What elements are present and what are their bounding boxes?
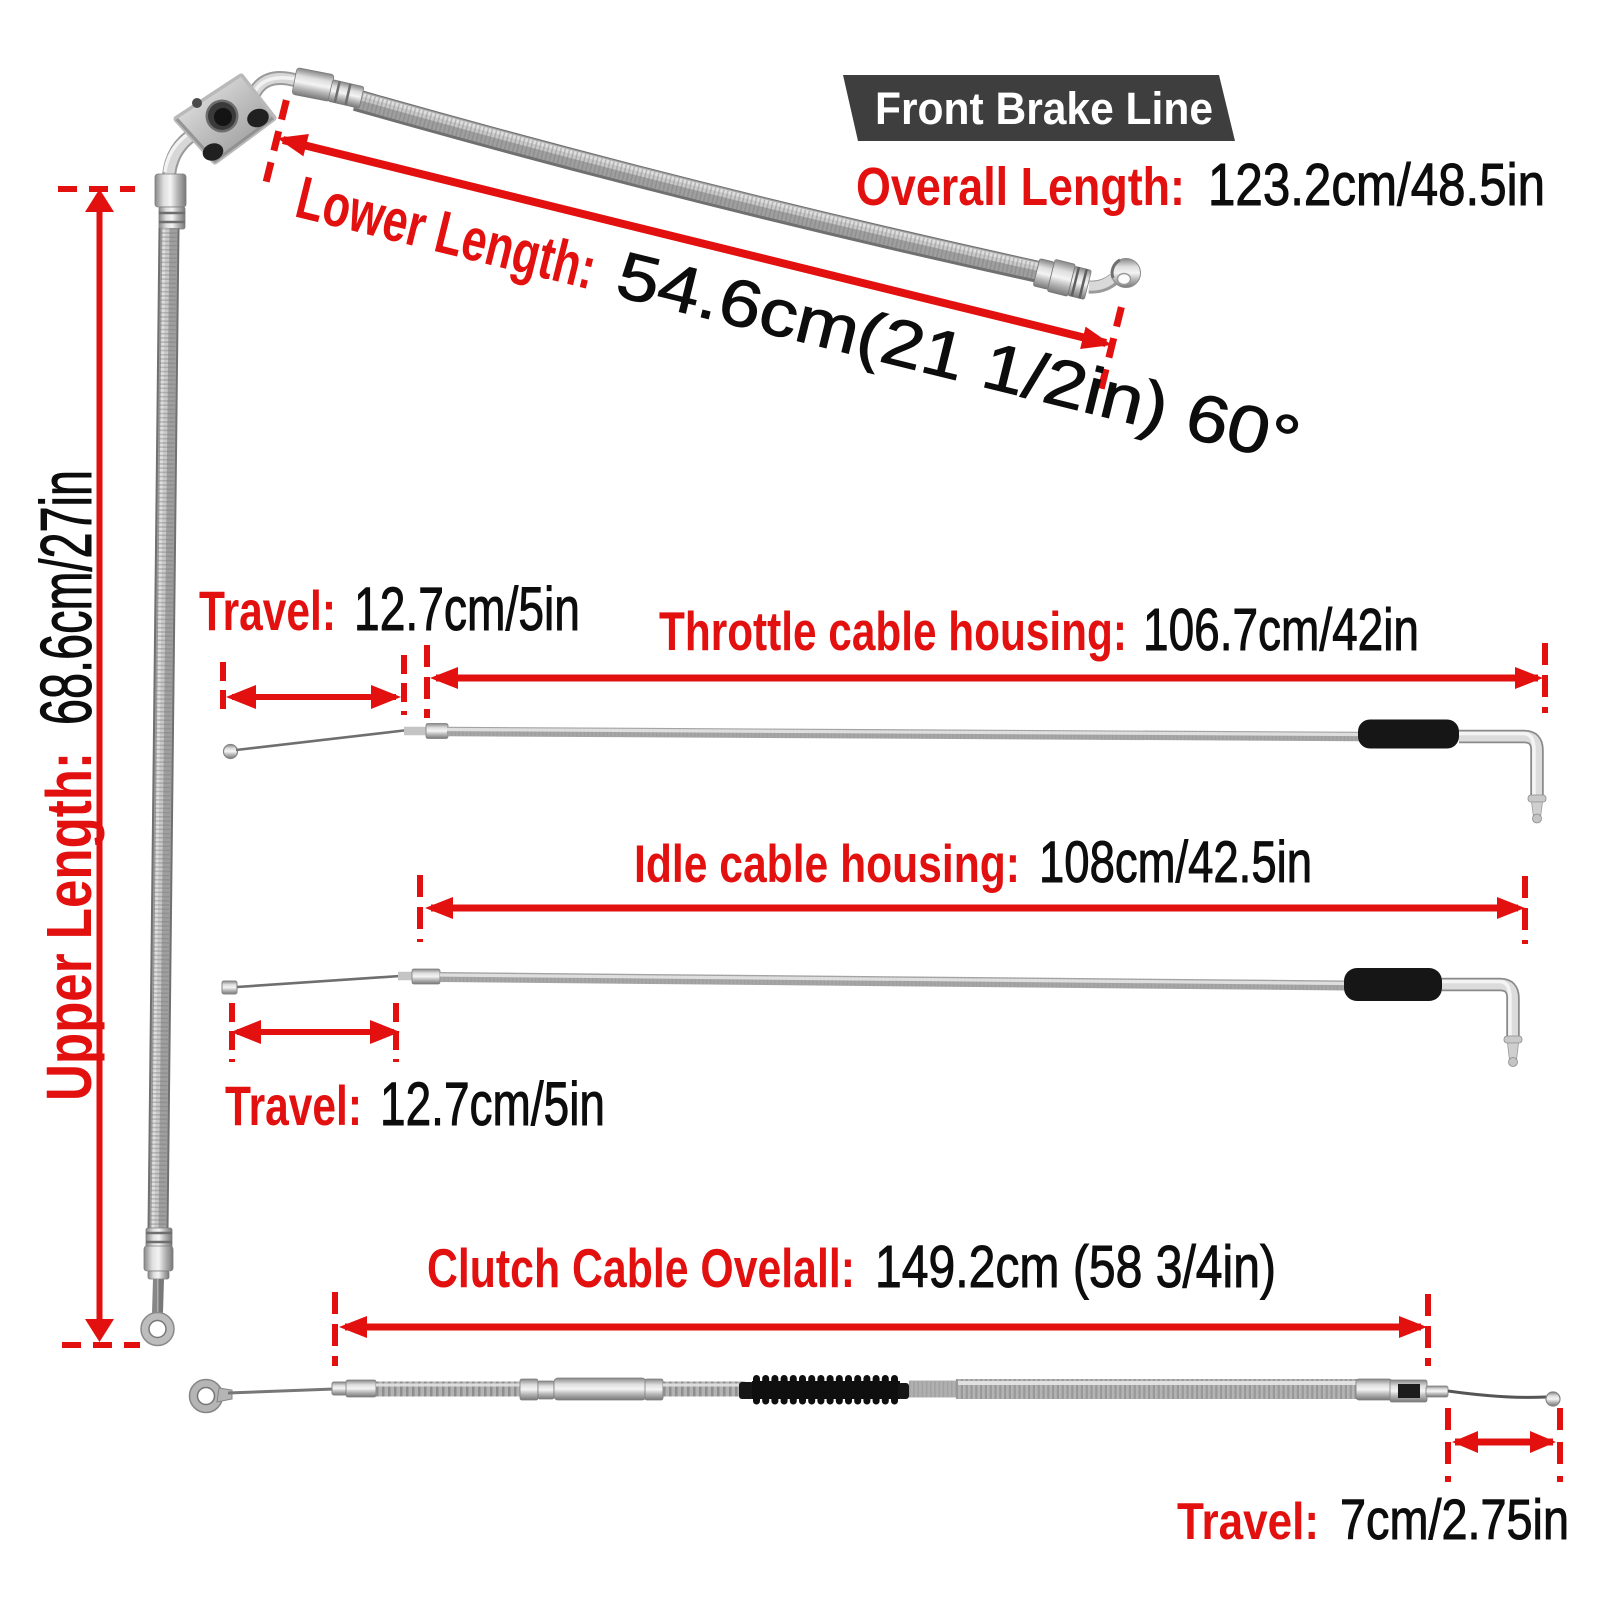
svg-text:108cm/42.5in: 108cm/42.5in [1039,830,1312,895]
svg-text:12.7cm/5in: 12.7cm/5in [380,1070,605,1138]
svg-text:Travel:: Travel: [225,1074,362,1137]
svg-text:Clutch Cable Ovelall:: Clutch Cable Ovelall: [427,1237,855,1299]
svg-text:12.7cm/5in: 12.7cm/5in [354,575,580,643]
svg-text:Throttle cable housing:: Throttle cable housing: [659,600,1127,662]
svg-text:Travel:: Travel: [1177,1493,1319,1551]
svg-text:7cm/2.75in: 7cm/2.75in [1340,1488,1569,1552]
svg-text:123.2cm/48.5in: 123.2cm/48.5in [1208,152,1545,218]
svg-text:Front Brake Line: Front Brake Line [875,83,1213,134]
svg-text:Travel:: Travel: [199,579,336,642]
svg-text:106.7cm/42in: 106.7cm/42in [1143,597,1419,663]
svg-text:Upper Length:68.6cm/27in: Upper Length:68.6cm/27in [27,470,107,1101]
svg-text:Idle cable housing:: Idle cable housing: [634,835,1020,894]
svg-text:149.2cm (58 3/4in): 149.2cm (58 3/4in) [875,1234,1276,1300]
svg-text:Overall Length:: Overall Length: [856,157,1185,217]
